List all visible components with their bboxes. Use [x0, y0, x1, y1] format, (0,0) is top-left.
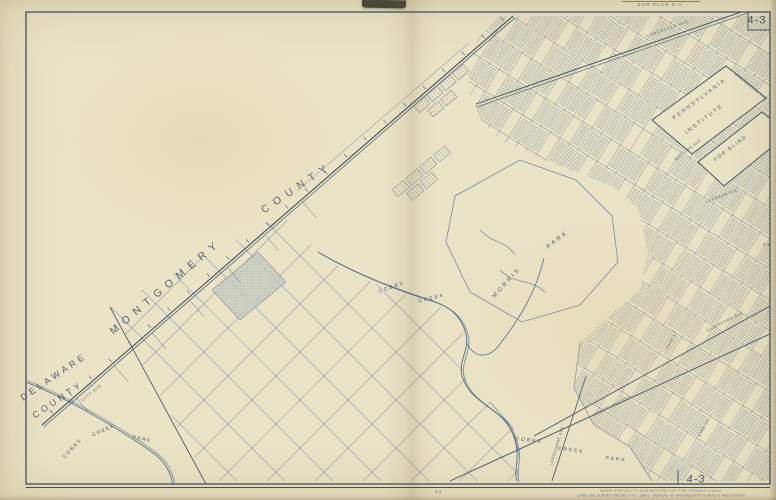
rowhouse-block [771, 34, 776, 57]
boundary-tick [148, 324, 151, 327]
street-line [204, 304, 637, 500]
map-linework [0, 0, 776, 500]
rowhouse-block [771, 96, 776, 119]
adjacent-plate-right: 4-4 [763, 243, 770, 248]
haverford-ave-line [534, 306, 770, 436]
rowhouse-block [623, 249, 641, 272]
city-block [392, 180, 409, 197]
rowhouse-block [583, 438, 601, 461]
rowhouse-block [705, 0, 723, 16]
rowhouse-block [469, 122, 487, 145]
rowhouse-block [550, 387, 568, 410]
block-cluster-top [414, 64, 477, 122]
boundary-tick [364, 137, 367, 140]
adjacent-plate-bottom: 4-1 [435, 490, 442, 495]
stub-street [265, 234, 279, 251]
scanned-map-page: { "plate": { "top_right": "4-3", "bottom… [0, 0, 776, 500]
rowhouse-block [767, 185, 776, 208]
rowhouse-block [510, 0, 528, 17]
boundary-tick [89, 376, 92, 379]
attribution-line2: LAND USE SURVEY PROJECT NO. 18543 - BURE… [577, 494, 745, 497]
street-line [0, 0, 324, 424]
major-roads [42, 2, 771, 484]
city-block [420, 172, 437, 189]
boundary-tick [226, 256, 229, 259]
rowhouse-block [619, 215, 637, 238]
plate-number-bottom-right: 4-3 [687, 475, 706, 486]
city-block [406, 169, 423, 186]
morris-park-area [446, 160, 618, 322]
stub-street [189, 300, 203, 317]
park-boundary [490, 402, 520, 457]
boundary-tick [187, 290, 190, 293]
rowhouse-block [533, 0, 551, 1]
boundary-tick [423, 86, 426, 89]
map-content [0, 0, 776, 500]
boundary-tick [344, 154, 347, 157]
boundary-tick [462, 52, 465, 55]
lansdowne-ave-steep-line [552, 376, 586, 481]
rowhouse-block [772, 280, 776, 303]
street-line [0, 0, 300, 400]
rowhouse-block [552, 0, 570, 12]
rowhouse-block [560, 454, 578, 477]
block-cluster-mid [392, 146, 458, 206]
boundary-tick [109, 359, 112, 362]
rowhouse-block [620, 461, 638, 484]
rowhouse-block [555, 359, 573, 382]
boundary-tick [285, 205, 288, 208]
rowhouse-block [559, 331, 577, 354]
stub-street [114, 365, 128, 382]
boundary-tick [482, 35, 485, 38]
rowhouse-block [771, 157, 776, 180]
street-line [213, 320, 756, 500]
plate-number-top-right: 4-3 [748, 16, 767, 27]
boundary-tick [207, 273, 210, 276]
city-block [420, 157, 437, 174]
rowhouse-block [564, 426, 582, 449]
rowhouse-block [738, 0, 756, 6]
shaded-block-stipple [212, 252, 286, 320]
rowhouse-block [492, 0, 510, 5]
rowhouse-block [468, 0, 486, 21]
rowhouse-block [501, 0, 519, 11]
city-line [42, 16, 513, 425]
city-block [433, 146, 450, 163]
city-block [407, 184, 424, 201]
rowhouse-block [715, 0, 733, 22]
map-canvas: 4-3 4-3 SUR PLAN 3-A 4-4 4-1 WORK PROJEC… [0, 0, 776, 500]
boundary-tick [442, 69, 445, 72]
stub-street [302, 202, 316, 219]
survey-plan-ref: SUR PLAN 3-A [637, 3, 682, 8]
boundary-tick [383, 120, 386, 123]
rowhouse-block [545, 353, 563, 376]
stub-street [152, 332, 166, 349]
rowhouse-block [559, 393, 577, 416]
rowhouse-block [610, 271, 628, 294]
boundary-tick [167, 307, 170, 310]
boundary-tick [246, 239, 249, 242]
rowhouse-block [594, 0, 612, 8]
boundary-tick [128, 342, 131, 345]
rowhouse-block [584, 0, 602, 2]
boundary-tick [403, 103, 406, 106]
rowhouse-block [561, 0, 579, 18]
neat-line [26, 12, 770, 484]
fold-tab [362, 0, 406, 8]
